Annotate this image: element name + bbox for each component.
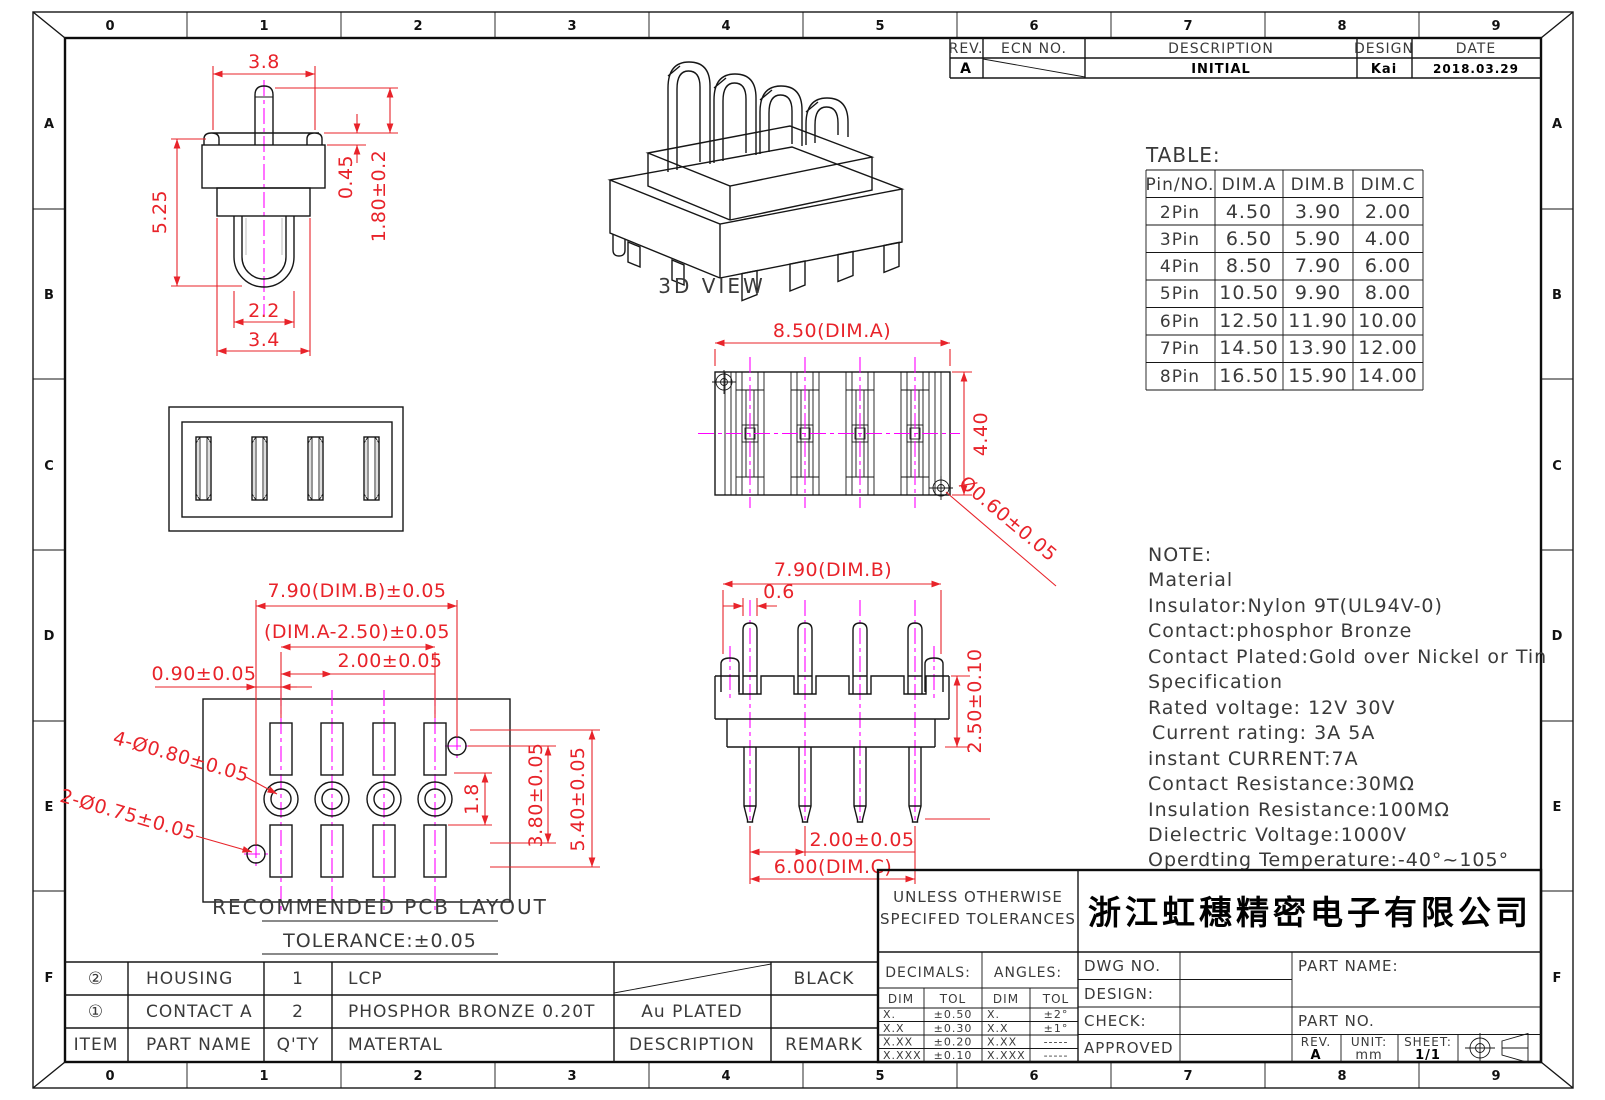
rev-label: REV. [1301,1035,1331,1049]
bom-qty-1: 2 [292,1002,304,1022]
note-line: Dielectric Voltage:1000V [1148,824,1407,846]
connector-front-view: 7.90(DIM.B) 0.6 2.50±0.10 2.00±0.05 6.00… [715,559,990,884]
bom-header-partname: PART NAME [146,1035,252,1055]
note-line: Insulation Resistance:100MΩ [1148,799,1450,821]
note-line: Insulator:Nylon 9T(UL94V-0) [1148,595,1443,617]
svg-text:5.90: 5.90 [1295,228,1341,250]
note-line: Contact:phosphor Bronze [1148,620,1412,642]
svg-text:6.00: 6.00 [1365,255,1411,277]
bom-header-remark: REMARK [785,1035,863,1055]
dimension-table: TABLE: Pin/NO. DIM.A DIM.B DIM.C 2Pin4.5… [1145,143,1423,390]
pcb-dim-380: 3.80±0.05 [525,742,547,847]
top-dim-440: 4.40 [970,412,992,456]
pcb-tolerance-label: TOLERANCE:±0.05 [282,930,477,952]
svg-text:13.90: 13.90 [1288,337,1347,359]
zone-left-f: F [45,971,54,986]
bom-item-2: ② [88,969,104,989]
svg-text:11.90: 11.90 [1288,310,1347,332]
dim-col-pin: Pin/NO. [1146,175,1215,195]
bom-qty-2: 1 [292,969,304,989]
svg-text:9.90: 9.90 [1295,282,1341,304]
note-line: instant CURRENT:7A [1148,748,1359,770]
note-line: Rated voltage: 12V 30V [1148,697,1396,719]
pcb-dim-b: 7.90(DIM.B)±0.05 [267,580,446,602]
side-dim-045: 0.45 [335,155,357,199]
part-name-label: PART NAME: [1298,957,1399,975]
drawing-canvas: 0 1 2 3 4 5 6 7 8 9 0 1 2 3 4 5 6 7 8 9 … [0,0,1605,1100]
zone-left-c: C [44,459,54,474]
zone-top-0: 0 [105,19,114,34]
ang-row: X. [987,1008,1000,1021]
zone-right-c: C [1552,459,1562,474]
ang-tol: ----- [1044,1049,1069,1062]
contact-side-view: 3.8 5.25 0.45 1.80±0.2 2.2 3.4 [149,51,398,356]
tolerance-note-line1: UNLESS OTHERWISE [893,888,1063,906]
rev-col-header: REV. [949,41,984,57]
rev-value: A [960,61,972,77]
pcb-dim-pitch: 2.00±0.05 [337,650,442,672]
svg-text:4.50: 4.50 [1226,201,1272,223]
zone-bot-8: 8 [1337,1069,1346,1084]
dec-tol: ±0.50 [934,1008,973,1021]
dim-col-a: DIM.A [1222,175,1277,195]
note-line: Material [1148,569,1233,591]
dwg-no-label: DWG NO. [1084,957,1161,975]
contact-bottom-view [169,407,403,531]
zone-bot-1: 1 [259,1069,268,1084]
svg-text:5Pin: 5Pin [1160,284,1200,304]
description-col-header: DESCRIPTION [1168,41,1274,57]
zone-left-d: D [44,629,55,644]
svg-text:10.50: 10.50 [1219,282,1278,304]
pcb-dim-holes4: 4-Ø0.80±0.05 [110,727,251,787]
three-d-view-label: 3D VIEW [658,274,765,298]
ang-dim-header: DIM [993,992,1019,1006]
zone-top-1: 1 [259,19,268,34]
design-value: Kai [1371,62,1397,77]
side-dim-180: 1.80±0.2 [368,150,390,242]
ecn-col-header: ECN NO. [1001,41,1067,57]
zone-top-5: 5 [875,19,884,34]
dec-tol: ±0.10 [934,1049,973,1062]
note-line: Contact Plated:Gold over Nickel or Tin [1148,646,1547,668]
zone-top-2: 2 [413,19,422,34]
svg-text:4.00: 4.00 [1365,228,1411,250]
zone-bot-5: 5 [875,1069,884,1084]
bom-item-1: ① [88,1002,104,1022]
unit-label: UNIT: [1351,1035,1387,1049]
zone-right-f: F [1553,971,1562,986]
zone-top-4: 4 [721,19,730,34]
pcb-dim-540: 5.40±0.05 [567,746,589,851]
svg-text:2Pin: 2Pin [1160,203,1200,223]
side-dim-34: 3.4 [248,329,280,351]
description-value: INITIAL [1191,62,1251,77]
dec-tol: ±0.30 [934,1022,973,1035]
front-dim-b: 7.90(DIM.B) [774,559,892,581]
dec-row: X.XXX [883,1049,922,1062]
zone-top-7: 7 [1183,19,1192,34]
dec-row: X. [883,1008,896,1021]
svg-text:14.00: 14.00 [1358,365,1417,387]
pcb-dim-holes2: 2-Ø0.75±0.05 [57,785,198,845]
side-dim-38: 3.8 [248,51,280,73]
company-name: 浙江虹穗精密电子有限公司 [1088,893,1532,932]
dec-tol: ±0.20 [934,1036,973,1049]
zone-bot-3: 3 [567,1069,576,1084]
note-line: Operdting Temperature:-40°~105° [1148,849,1509,871]
side-dim-525: 5.25 [149,190,171,234]
three-d-view: 3D VIEW [610,62,902,301]
pcb-layout-title: RECOMMENDED PCB LAYOUT [212,895,548,919]
bom-material-1: PHOSPHOR BRONZE 0.20T [348,1002,595,1022]
svg-text:15.90: 15.90 [1288,365,1347,387]
ang-tol: ±1° [1044,1022,1069,1035]
date-col-header: DATE [1456,41,1496,57]
pcb-dim-18: 1.8 [461,783,483,815]
svg-text:7.90: 7.90 [1295,255,1341,277]
ang-row: X.XX [987,1036,1017,1049]
angles-label: ANGLES: [994,965,1062,981]
front-dim-c: 6.00(DIM.C) [774,856,893,878]
bom-header-description: DESCRIPTION [629,1035,755,1055]
svg-text:7Pin: 7Pin [1160,339,1200,359]
zone-bot-4: 4 [721,1069,730,1084]
note-line: Contact Resistance:30MΩ [1148,773,1415,795]
dec-dim-header: DIM [888,992,914,1006]
side-dim-22: 2.2 [248,300,280,322]
pcb-layout-view: 7.90(DIM.B)±0.05 (DIM.A-2.50)±0.05 2.00±… [57,580,600,954]
unit-value: mm [1355,1048,1382,1063]
dim-col-b: DIM.B [1291,175,1346,195]
zone-right-b: B [1552,288,1562,303]
note-line: NOTE: [1148,544,1212,566]
front-dim-250: 2.50±0.10 [964,648,986,753]
bom-description-1: Au PLATED [641,1002,742,1022]
dec-tol-header: TOL [939,992,966,1006]
bom-partname-2: HOUSING [146,969,233,989]
ang-tol-header: TOL [1042,992,1069,1006]
date-value: 2018.03.29 [1433,62,1519,76]
svg-text:14.50: 14.50 [1219,337,1278,359]
ang-tol: ±2° [1044,1008,1069,1021]
front-dim-06: 0.6 [763,581,795,603]
pcb-dim-a: (DIM.A-2.50)±0.05 [264,621,450,643]
zone-left-e: E [45,800,54,815]
svg-text:8.00: 8.00 [1365,282,1411,304]
dim-table-rows: 2Pin4.503.902.00 3Pin6.505.904.00 4Pin8.… [1160,201,1418,387]
zone-top-9: 9 [1491,19,1500,34]
svg-text:2.00: 2.00 [1365,201,1411,223]
zone-right-d: D [1552,629,1563,644]
note-line: Current rating: 3A 5A [1152,722,1375,744]
ang-tol: ----- [1044,1036,1069,1049]
sheet-value: 1/1 [1415,1048,1441,1063]
zone-bot-0: 0 [105,1069,114,1084]
bom-header-qty: Q'TY [277,1035,320,1055]
decimals-label: DECIMALS: [885,965,971,981]
approved-label: APPROVED [1084,1039,1174,1057]
zone-top-3: 3 [567,19,576,34]
zone-bot-2: 2 [413,1069,422,1084]
bom-partname-1: CONTACT A [146,1002,253,1022]
zone-left-b: B [44,288,54,303]
ang-row: X.XXX [987,1049,1026,1062]
svg-text:8.50: 8.50 [1226,255,1272,277]
bom-material-2: LCP [348,969,383,989]
revision-table: REV. ECN NO. DESCRIPTION DATE DESIGN DAT… [949,38,1541,78]
dec-row: X.XX [883,1036,913,1049]
tolerance-note-line2: SPECIFED TOLERANCES [880,910,1076,928]
zone-top-6: 6 [1029,19,1038,34]
svg-text:4Pin: 4Pin [1160,257,1200,277]
zone-right-a: A [1552,117,1562,132]
ang-row: X.X [987,1022,1009,1035]
svg-text:8Pin: 8Pin [1160,367,1200,387]
zone-bot-6: 6 [1029,1069,1038,1084]
svg-text:3.90: 3.90 [1295,201,1341,223]
zone-left-a: A [44,117,54,132]
dim-col-c: DIM.C [1360,175,1415,195]
note-line: Specification [1148,671,1283,693]
svg-text:6.50: 6.50 [1226,228,1272,250]
svg-text:12.50: 12.50 [1219,310,1278,332]
bom-header-material: MATERTAL [348,1035,443,1055]
zone-bot-9: 9 [1491,1069,1500,1084]
projection-symbol-icon [1465,1033,1528,1063]
zone-bot-7: 7 [1183,1069,1192,1084]
pcb-dim-offset: 0.90±0.05 [151,663,256,685]
bom-remark-2: BLACK [794,969,855,989]
connector-top-view: 8.50(DIM.A) 4.40 Ø0.60±0.05 [698,320,1061,586]
title-block: UNLESS OTHERWISE SPECIFED TOLERANCES 浙江虹… [878,870,1541,1063]
design-label: DESIGN: [1084,985,1154,1003]
top-dim-hole: Ø0.60±0.05 [955,472,1061,566]
svg-text:6Pin: 6Pin [1160,312,1200,332]
front-dim-pitch: 2.00±0.05 [809,829,914,851]
zone-top-8: 8 [1337,19,1346,34]
rev-value: A [1310,1048,1321,1063]
notes-block: NOTE: Material Insulator:Nylon 9T(UL94V-… [1148,544,1547,871]
sheet-label: SHEET: [1404,1035,1452,1049]
check-label: CHECK: [1084,1012,1147,1030]
dim-table-title: TABLE: [1145,143,1221,167]
svg-text:12.00: 12.00 [1358,337,1417,359]
part-no-label: PART NO. [1298,1012,1375,1030]
bom-table: ② HOUSING 1 LCP BLACK ① CONTACT A 2 PHOS… [65,962,878,1062]
svg-text:16.50: 16.50 [1219,365,1278,387]
svg-text:10.00: 10.00 [1358,310,1417,332]
design-col-header: DESIGN [1354,41,1414,57]
zone-right-e: E [1553,800,1562,815]
dec-row: X.X [883,1022,905,1035]
bom-header-item: ITEM [74,1035,119,1055]
svg-text:3Pin: 3Pin [1160,230,1200,250]
top-dim-a: 8.50(DIM.A) [773,320,891,342]
